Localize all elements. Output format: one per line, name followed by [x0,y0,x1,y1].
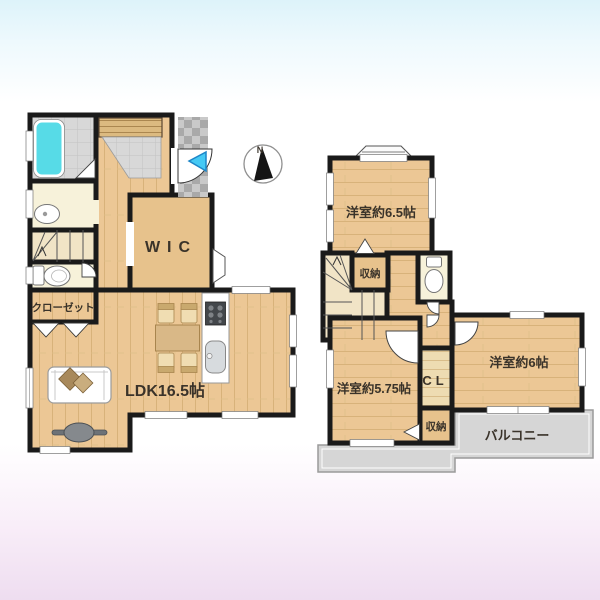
washroom [30,181,96,230]
wic-door-opening [126,222,134,266]
stairs-1f [30,230,96,262]
wic-label: WIC [145,239,197,256]
bedroom-6-label: 洋室約6帖 [489,355,548,370]
floor-plan-drawing: WIC クローゼット LDK16.5帖 N [0,0,600,600]
storage-lower-label: 収納 [426,420,447,433]
bathtub [35,121,63,176]
ldk-label: LDK16.5帖 [125,381,205,400]
stove [206,302,226,325]
toilet-bowl-2f [425,270,443,293]
balcony-label: バルコニー [485,428,550,443]
washroom-door-opening [93,200,99,224]
toilet-tank-2f [427,257,442,267]
floor-plan-page: WIC クローゼット LDK16.5帖 N [0,0,600,600]
floorplan-2f: 洋室約6.5帖 収納 洋室約5.75帖 CL 洋室約6帖 収納 バルコニー [318,146,593,472]
storage-upper-label: 収納 [360,267,381,280]
wic-fold-door-icon [213,249,225,283]
cl-label: CL [422,373,447,388]
bedroom-6-5-label: 洋室約6.5帖 [346,205,416,220]
compass-icon: N [244,145,282,183]
dining-table [156,325,200,351]
toilet-tank-1f [33,266,44,285]
washbasin-drain [43,212,47,216]
shoe-cabinet [99,118,162,137]
bedroom-5-75-label: 洋室約5.75帖 [337,381,412,396]
closet-label: クローゼット [32,301,95,314]
faucet [207,353,212,358]
compass-north-label: N [257,145,264,155]
sofa [48,367,111,403]
